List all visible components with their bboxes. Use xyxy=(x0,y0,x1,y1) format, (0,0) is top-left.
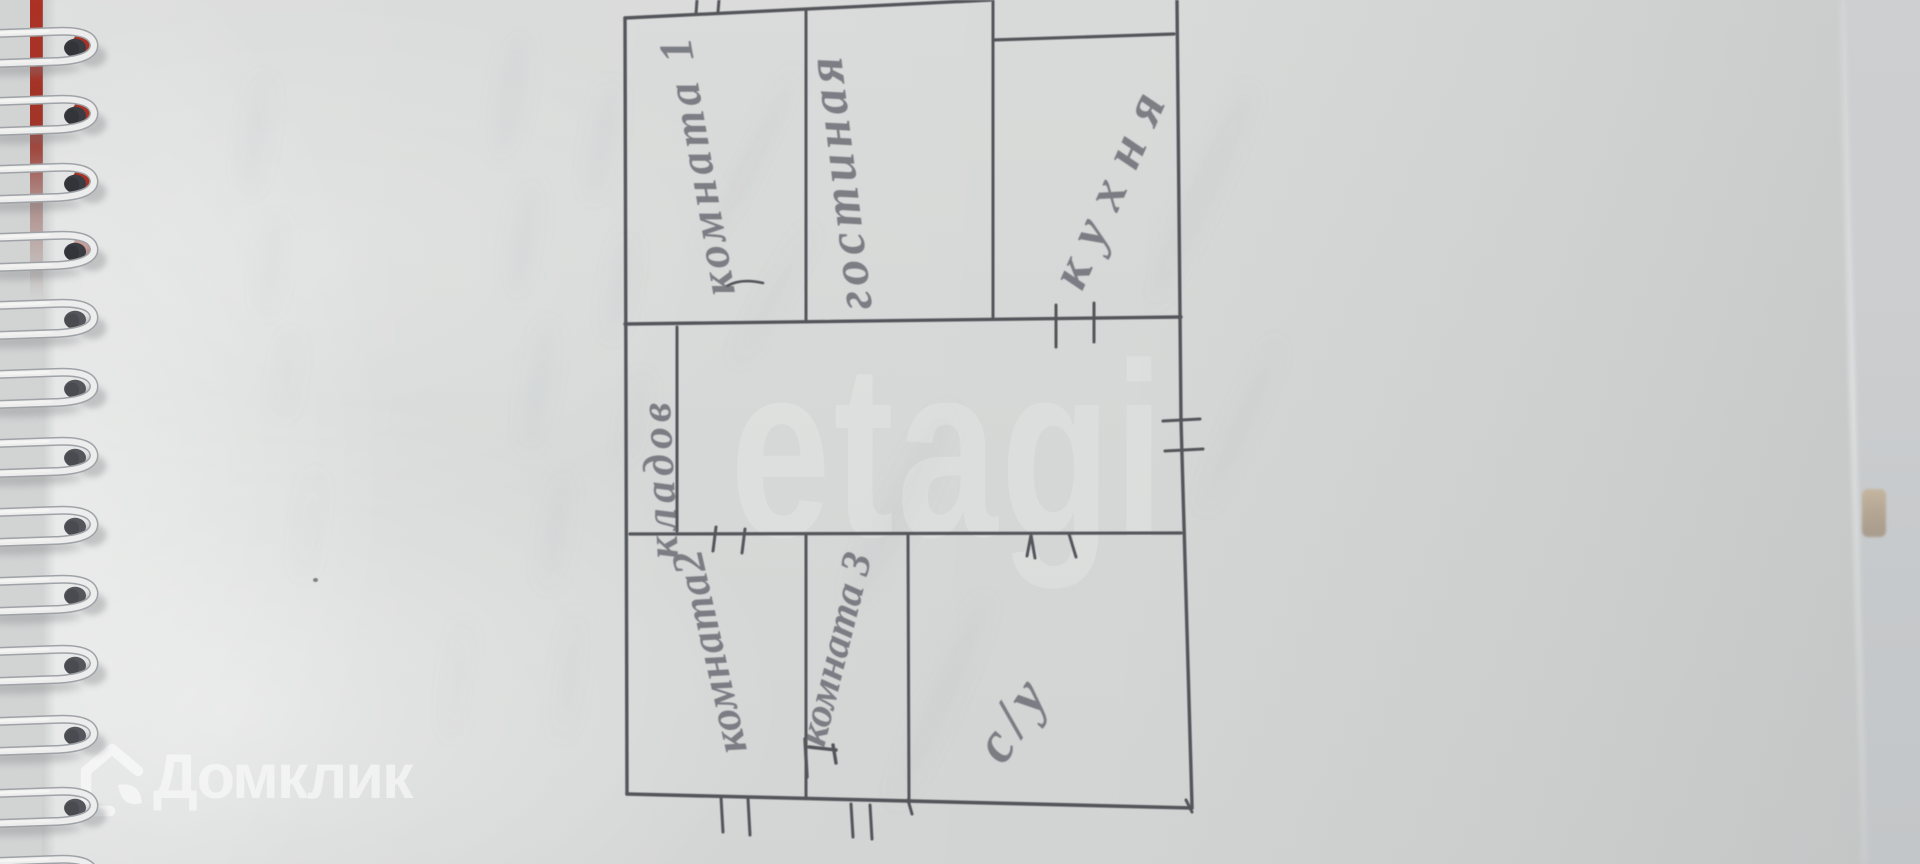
svg-text:комната2: комната2 xyxy=(661,545,757,759)
svg-text:комната 1: комната 1 xyxy=(648,29,745,300)
svg-text:гостиная: гостиная xyxy=(796,49,884,313)
svg-text:кладов: кладов xyxy=(631,396,688,560)
svg-text:кухня: кухня xyxy=(1038,67,1185,297)
svg-text:с/у: с/у xyxy=(960,661,1064,773)
svg-text:комната 3: комната 3 xyxy=(789,548,881,751)
